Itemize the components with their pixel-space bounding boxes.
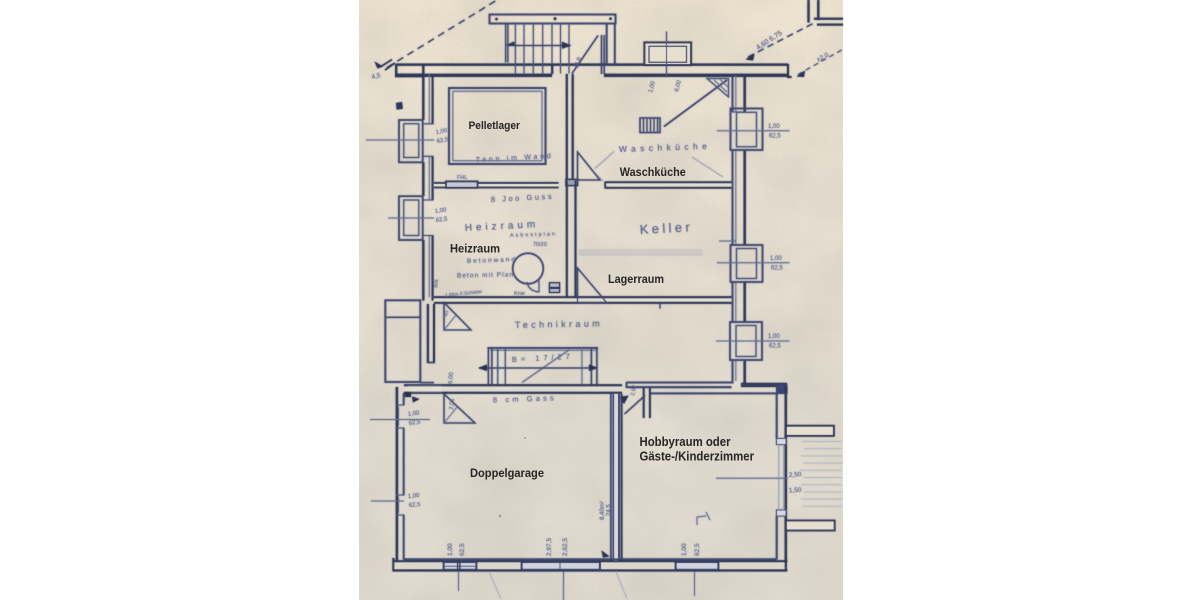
svg-text:Lagerraum: Lagerraum [608,274,664,286]
svg-text:Pelletlager: Pelletlager [469,120,521,132]
svg-text:Heizraum: Heizraum [450,244,500,256]
svg-text:Hobbyraum oder: Hobbyraum oder [640,435,731,449]
svg-text:Gäste-/Kinderzimmer: Gäste-/Kinderzimmer [640,450,755,464]
svg-text:Waschküche: Waschküche [620,167,686,179]
svg-text:Doppelgarage: Doppelgarage [470,466,544,480]
